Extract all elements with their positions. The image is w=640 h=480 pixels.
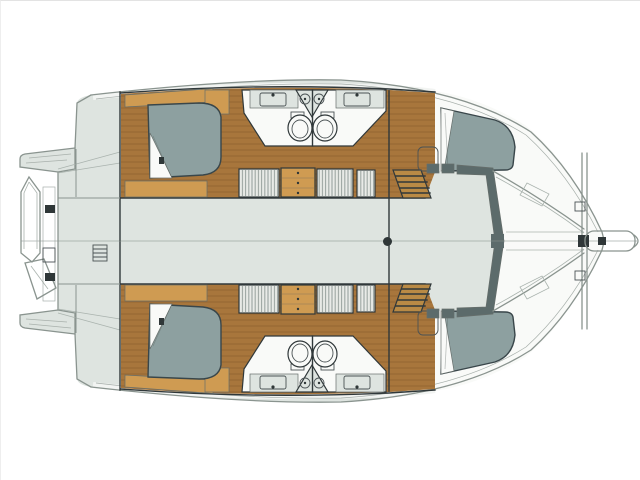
floor-plan-page	[0, 0, 640, 480]
davit-fitting-bottom	[45, 273, 55, 281]
shower-drain-aft	[304, 98, 306, 100]
wardrobe-louver-1-slats	[240, 170, 278, 196]
hull-starboard-half	[20, 241, 604, 402]
bowsprit-fitting	[598, 237, 606, 245]
shower-drain-fwd	[318, 98, 320, 100]
wardrobe-louver-3-slats	[358, 171, 374, 196]
faucet-aft	[271, 93, 274, 96]
drawer-knob-1	[297, 172, 299, 174]
wardrobe-louver-2-slats	[318, 170, 352, 196]
catamaran-floor-plan	[1, 1, 640, 480]
coachroof-tip	[491, 234, 504, 241]
drawer-knob-2	[297, 182, 299, 184]
drawer-knob-3	[297, 192, 299, 194]
mast-step	[383, 237, 392, 246]
bed-accent	[159, 157, 164, 164]
trim-block-1	[427, 164, 439, 173]
hull-port-half	[20, 80, 604, 241]
davit-fitting-top	[45, 205, 55, 213]
faucet-fwd	[355, 93, 358, 96]
forestay-fitting	[578, 235, 589, 247]
dinghy-tubes	[24, 182, 37, 249]
inboard-shelf	[125, 181, 207, 197]
trim-block-2	[442, 164, 454, 173]
davit-beam	[43, 187, 55, 301]
